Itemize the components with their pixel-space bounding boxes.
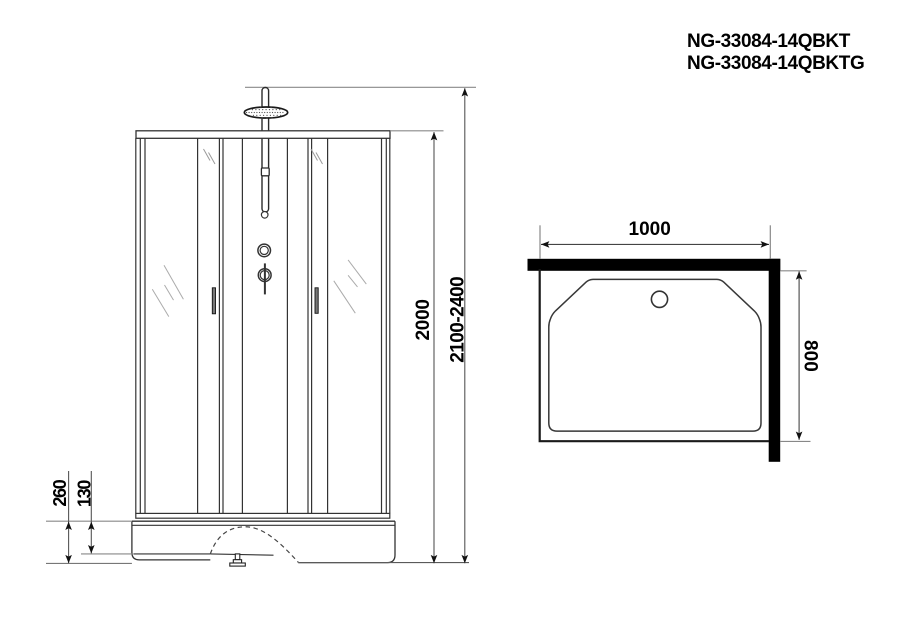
svg-text:2100-2400: 2100-2400 — [448, 277, 469, 363]
svg-text:NG-33084-14QBKTG: NG-33084-14QBKTG — [687, 53, 864, 74]
svg-text:130: 130 — [75, 480, 95, 507]
svg-text:NG-33084-14QBKT: NG-33084-14QBKT — [687, 31, 851, 52]
svg-text:1000: 1000 — [629, 219, 671, 240]
svg-text:260: 260 — [50, 479, 70, 506]
svg-text:2000: 2000 — [413, 299, 434, 340]
svg-text:800: 800 — [800, 340, 821, 372]
